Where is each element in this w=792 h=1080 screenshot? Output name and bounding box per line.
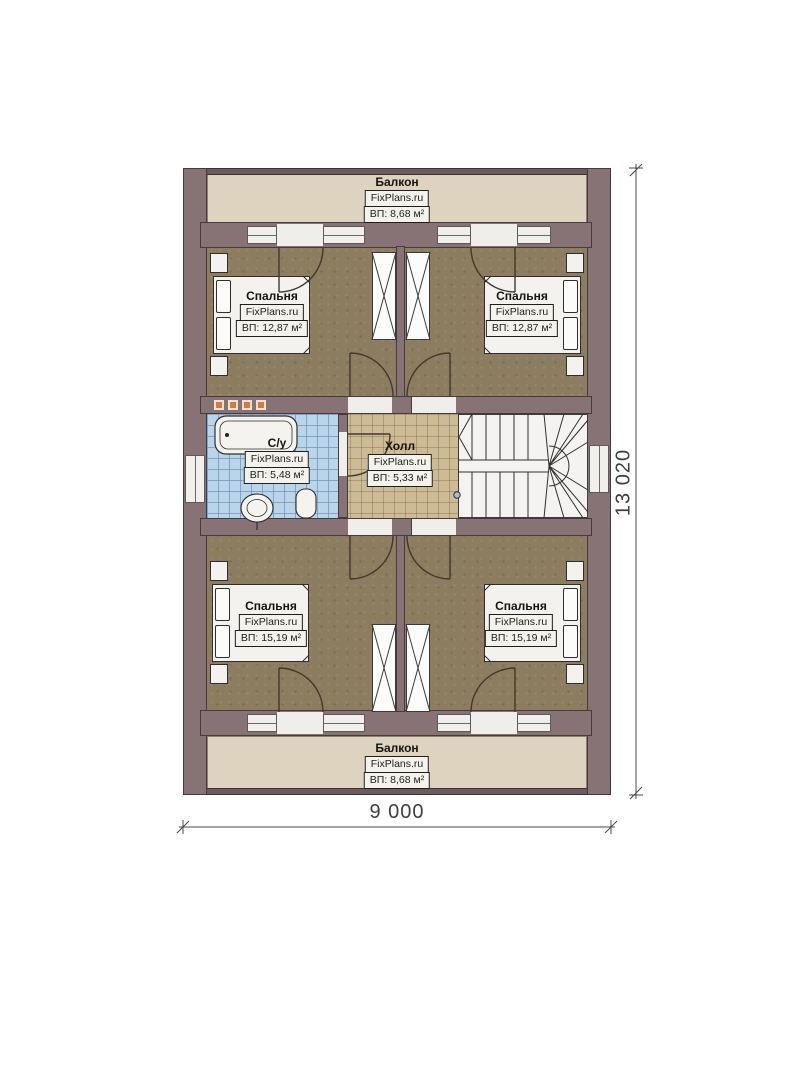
watermark-fixplans: FixPlans.ru (239, 614, 304, 631)
watermark-fixplans: FixPlans.ru (365, 190, 430, 207)
pillow (563, 588, 578, 621)
stairs-area (458, 414, 588, 518)
door-sill-balcony-bottom-right (471, 712, 517, 734)
door-sill-hall-top-left (348, 397, 392, 413)
nightstand (210, 561, 228, 581)
room-label-balcony-bottom: Балкон FixPlans.ru ВП: 8,68 м² (364, 742, 430, 789)
nightstand (210, 664, 228, 684)
wardrobe-top-right (406, 252, 430, 340)
room-label-hall: Холл FixPlans.ru ВП: 5,33 м² (367, 440, 433, 487)
room-area: ВП: 5,33 м² (367, 470, 433, 487)
room-area: ВП: 8,68 м² (364, 206, 430, 223)
nightstand (566, 356, 584, 376)
room-area: ВП: 12,87 м² (236, 320, 308, 337)
room-name: Спальня (246, 290, 298, 303)
room-label-bedroom-top-right: Спальня FixPlans.ru ВП: 12,87 м² (486, 290, 558, 337)
nightstand (210, 356, 228, 376)
room-label-bedroom-bottom-left: Спальня FixPlans.ru ВП: 15,19 м² (235, 600, 307, 647)
watermark-fixplans: FixPlans.ru (245, 451, 310, 468)
wall-center-top (396, 246, 405, 414)
window-right-wall (589, 445, 609, 493)
door-sill-balcony-top-right (471, 224, 517, 246)
pillow (563, 317, 578, 350)
wall-center-bottom (396, 518, 405, 712)
room-name: Балкон (375, 742, 418, 755)
room-label-bedroom-top-left: Спальня FixPlans.ru ВП: 12,87 м² (236, 290, 308, 337)
wall-balcony-bottom-parapet (183, 788, 611, 795)
radiator (214, 400, 266, 410)
room-name: Спальня (496, 290, 548, 303)
room-label-bathroom: С/у FixPlans.ru ВП: 5,48 м² (244, 437, 310, 484)
window-bottom-3 (437, 714, 471, 732)
room-label-bedroom-bottom-right: Спальня FixPlans.ru ВП: 15,19 м² (485, 600, 557, 647)
room-area: ВП: 12,87 м² (486, 320, 558, 337)
door-sill-hall-bottom-left (348, 519, 392, 535)
window-top-2 (323, 226, 365, 244)
room-area: ВП: 8,68 м² (364, 772, 430, 789)
wardrobe-bottom-right (406, 624, 430, 712)
wardrobe-top-left (372, 252, 396, 340)
door-sill-bathroom (339, 432, 347, 476)
window-bottom-4 (517, 714, 551, 732)
window-top-4 (517, 226, 551, 244)
dimension-width-label: 9 000 (183, 801, 611, 824)
room-name: Холл (385, 440, 415, 453)
watermark-fixplans: FixPlans.ru (368, 454, 433, 471)
door-sill-hall-top-right (412, 397, 456, 413)
nightstand (210, 253, 228, 273)
window-bottom-1 (247, 714, 277, 732)
window-top-3 (437, 226, 471, 244)
pillow (216, 317, 231, 350)
pillow (563, 280, 578, 313)
window-bottom-2 (323, 714, 365, 732)
radiator-segment (256, 400, 266, 410)
wardrobe-bottom-left (372, 624, 396, 712)
room-name: С/у (268, 437, 287, 450)
room-area: ВП: 5,48 м² (244, 467, 310, 484)
nightstand (566, 664, 584, 684)
room-name: Спальня (495, 600, 547, 613)
room-area: ВП: 15,19 м² (485, 630, 557, 647)
door-sill-balcony-bottom-left (277, 712, 323, 734)
watermark-fixplans: FixPlans.ru (365, 756, 430, 773)
pillow (215, 625, 230, 658)
wall-pillar-lower (390, 518, 412, 536)
door-sill-hall-bottom-right (412, 519, 456, 535)
radiator-segment (228, 400, 238, 410)
watermark-fixplans: FixPlans.ru (240, 304, 305, 321)
room-name: Балкон (375, 176, 418, 189)
radiator-segment (242, 400, 252, 410)
wall-balcony-top-parapet (183, 168, 611, 175)
room-label-balcony-top: Балкон FixPlans.ru ВП: 8,68 м² (364, 176, 430, 223)
floor-plan-canvas: Балкон FixPlans.ru ВП: 8,68 м² Спальня F… (0, 0, 792, 1080)
window-left-wall (185, 455, 205, 503)
wall-pillar-upper (390, 396, 412, 414)
door-sill-balcony-top-left (277, 224, 323, 246)
pillow (215, 588, 230, 621)
pillow (216, 280, 231, 313)
dimension-height-label: 13 020 (613, 438, 636, 528)
room-area: ВП: 15,19 м² (235, 630, 307, 647)
nightstand (566, 253, 584, 273)
radiator-segment (214, 400, 224, 410)
watermark-fixplans: FixPlans.ru (490, 304, 555, 321)
watermark-fixplans: FixPlans.ru (489, 614, 554, 631)
pillow (563, 625, 578, 658)
room-name: Спальня (245, 600, 297, 613)
nightstand (566, 561, 584, 581)
window-top-1 (247, 226, 277, 244)
